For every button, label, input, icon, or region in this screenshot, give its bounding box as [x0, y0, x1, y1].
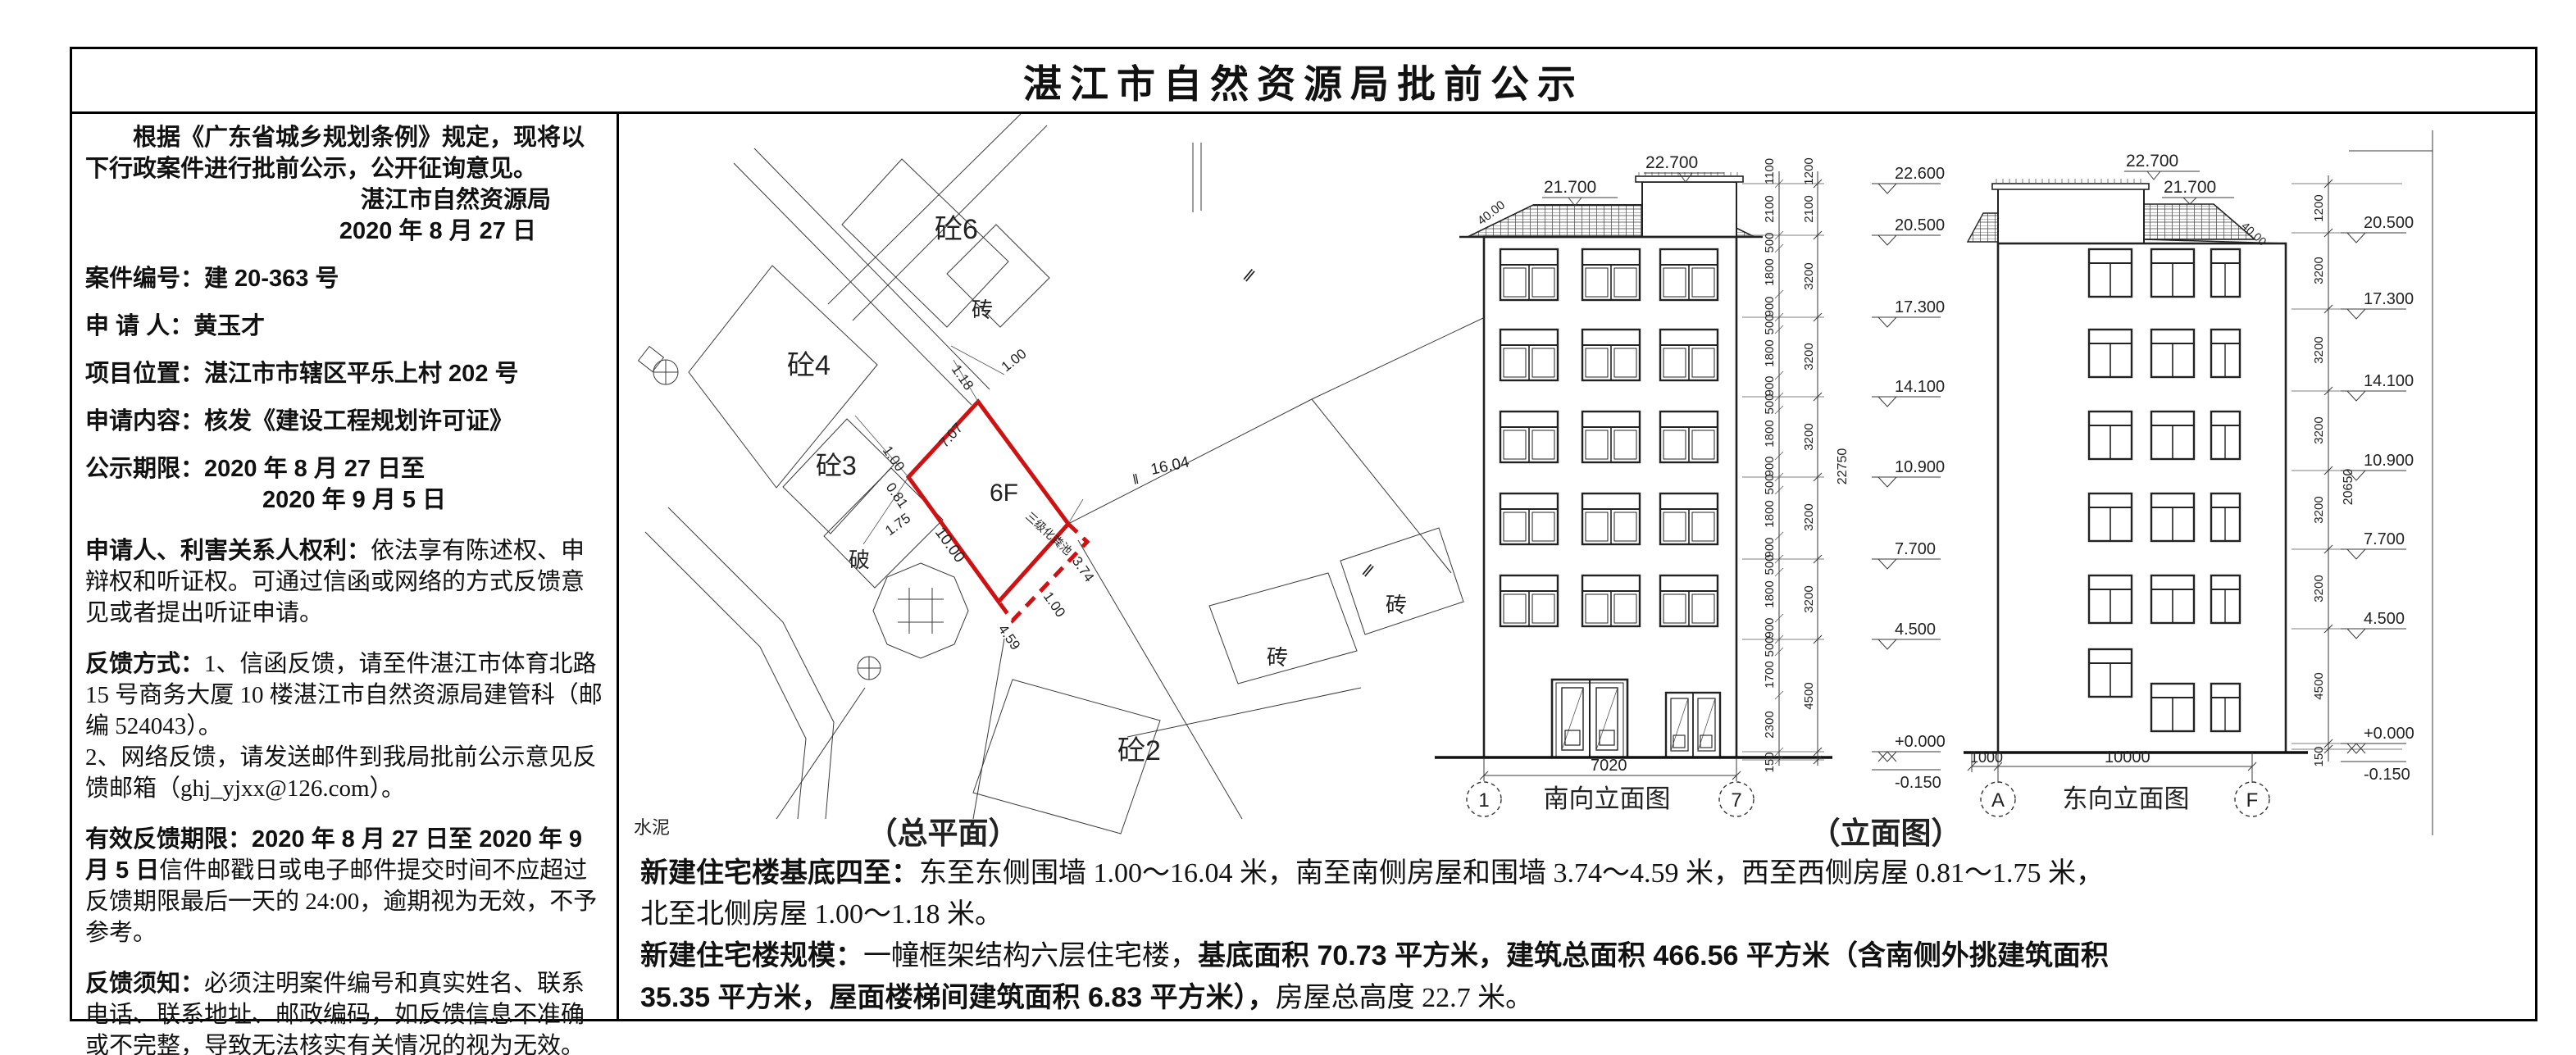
level-value: 7.700 [2364, 530, 2405, 548]
axis-label: 7 [1731, 789, 1741, 812]
storey-dim: 1200 [2312, 194, 2326, 221]
detail-dim: 500 [1763, 393, 1777, 414]
level-value: +0.000 [2364, 725, 2414, 743]
dim: 4.59 [995, 621, 1024, 653]
axis-label: A [1991, 789, 2005, 812]
dim: 10.00 [931, 525, 968, 566]
storey-dim: 3200 [2312, 336, 2326, 363]
total-dim: 22750 [1836, 448, 1850, 485]
detail-dim: 500 [1763, 636, 1777, 657]
document-frame: 湛江市自然资源局批前公示 根据《广东省城乡规划条例》规定，现将以下行政案件进行批… [70, 47, 2537, 1021]
feedback-block: 反馈方式：1、信函反馈，请至件湛江市体育北路 15 号商务大厦 10 楼湛江市自… [85, 648, 605, 804]
storey-dim: 4500 [2312, 672, 2326, 699]
storey-dim: 1200 [1802, 157, 1816, 184]
footer-line-2: 北至北侧房屋 1.00～1.18 米。 [640, 894, 2524, 935]
storey-dim: 150 [2312, 746, 2326, 766]
page-title: 湛江市自然资源局批前公示 [1023, 52, 1584, 109]
storey-dim: 3200 [2312, 257, 2326, 284]
detail-dim: 1800 [1763, 500, 1777, 527]
rights-block: 申请人、利害关系人权利：依法享有陈述权、申辩权和听证权。可通过信函或网络的方式反… [85, 535, 605, 629]
level-value: 20.500 [1895, 216, 1945, 234]
level-label: 21.700 [2164, 178, 2216, 197]
parcel-label: 砼2 [1117, 735, 1161, 766]
detail-dim: 900 [1763, 617, 1777, 638]
storey-dim: 3200 [2312, 496, 2326, 523]
east-elevation: 22.700 21.700 40.00 1000 10000 A F 东向立 [1964, 130, 2433, 835]
storey-dim: 3200 [1802, 585, 1816, 612]
dim: 16.04 [1149, 453, 1191, 479]
level-value: 7.700 [1895, 540, 1936, 558]
dim: 1.18 [949, 362, 977, 393]
level-value: 10.900 [1895, 458, 1945, 476]
field-period-line2: 2020 年 9 月 5 日 [262, 484, 605, 516]
detail-dim: 2100 [1763, 195, 1777, 222]
break-mark: ‖ [1359, 561, 1377, 581]
detail-dim: 150 [1763, 752, 1777, 772]
east-elev-title: 东向立面图 [2063, 784, 2190, 813]
level-value: 4.500 [2364, 610, 2405, 628]
notice-issue-date: 2020 年 8 月 27 日 [85, 216, 605, 247]
south-levels: 22.600 20.500 17.300 14.100 10.900 7.700… [1872, 165, 1946, 792]
level-value: 10.900 [2364, 452, 2414, 470]
storey-dim: 3200 [1802, 503, 1816, 530]
south-elev-title: 南向立面图 [1544, 784, 1671, 813]
site-plan: 砼4 砼6 砼3 砼2 砖 砖 砖 破 水泥 6F 三级化粪池 1.18 [634, 114, 1513, 850]
brick-label: 砖 [1386, 593, 1407, 617]
detail-dim: 1700 [1763, 661, 1777, 688]
brick-label: 砖 [1267, 645, 1288, 670]
notes-block: 反馈须知：必须注明案件编号和真实姓名、联系电话、联系地址、邮政编码，如反馈信息不… [85, 968, 605, 1055]
feedback-label: 反馈方式： [85, 651, 204, 677]
dim-small: 1000 [1970, 749, 2003, 766]
detail-dim: 1800 [1763, 420, 1777, 447]
footer-l1-text: 东至东侧围墙 1.00～16.04 米，南至南侧房屋和围墙 3.74～4.59 … [919, 858, 2104, 889]
storey-dim: 3200 [2312, 416, 2326, 443]
dim: 1.00 [999, 346, 1030, 375]
detail-dim: 500 [1763, 554, 1777, 575]
footer-notes: 新建住宅楼基底四至：东至东侧围墙 1.00～16.04 米，南至南侧房屋和围墙 … [640, 853, 2524, 1019]
footer-line-1: 新建住宅楼基底四至：东至东侧围墙 1.00～16.04 米，南至南侧房屋和围墙 … [640, 853, 2524, 894]
field-applicant: 申 请 人：黄玉才 [85, 311, 605, 342]
detail-dim: 500 [1763, 232, 1777, 252]
width-dim: 7020 [1591, 757, 1627, 775]
footer-line-4: 35.35 平方米，屋面楼梯间建筑面积 6.83 平方米），房屋总高度 22.7… [640, 977, 2524, 1019]
septic-note: 三级化粪池 [1023, 509, 1075, 557]
level-label: 22.700 [2126, 152, 2178, 171]
footer-l3-text: 一幢框架结构六层住宅楼， [863, 941, 1198, 971]
detail-dim: 1800 [1763, 339, 1777, 366]
detail-dim: 900 [1763, 456, 1777, 476]
level-label: 21.700 [1544, 178, 1596, 197]
level-value: 20.500 [2364, 214, 2414, 232]
valid-period-block: 有效反馈期限：2020 年 8 月 27 日至 2020 年 9 月 5 日信件… [85, 824, 605, 948]
axis-label: 1 [1478, 789, 1489, 812]
field-content: 申请内容：核发《建设工程规划许可证》 [85, 406, 605, 437]
storey-dim: 3200 [1802, 423, 1816, 450]
level-value: 4.500 [1895, 621, 1936, 639]
detail-dim: 900 [1763, 296, 1777, 316]
detail-dim: 500 [1763, 474, 1777, 494]
storey-dim: 3200 [2312, 575, 2326, 602]
rights-label: 申请人、利害关系人权利： [85, 538, 371, 564]
notice-page: 湛江市自然资源局批前公示 根据《广东省城乡规划条例》规定，现将以下行政案件进行批… [0, 0, 2576, 1055]
level-value: 22.600 [1895, 165, 1945, 183]
level-value: +0.000 [1895, 733, 1946, 751]
detail-dim: 1800 [1763, 258, 1777, 285]
detail-dim: 1800 [1763, 580, 1777, 607]
dim-main: 10000 [2105, 748, 2150, 766]
dim: 0.81 [883, 480, 912, 511]
valid-text: 信件邮戳日或电子邮件提交时间不应超过反馈期限最后一天的 24:00，逾期视为无效… [85, 857, 597, 946]
parcel-label: 砼3 [816, 451, 857, 480]
cad-drawings: 砼4 砼6 砼3 砼2 砖 砖 砖 破 水泥 6F 三级化粪池 1.18 [619, 114, 2533, 852]
cement-label: 水泥 [634, 817, 670, 838]
notes-label: 反馈须知： [85, 971, 204, 997]
site-plan-caption: （总平面） [867, 816, 1019, 850]
detail-dim: 500 [1763, 314, 1777, 334]
drawings-area: 砼4 砼6 砼3 砼2 砖 砖 砖 破 水泥 6F 三级化粪池 1.18 [619, 114, 2535, 1019]
plot-6f-label: 6F [990, 480, 1018, 507]
dim: 7.07 [936, 420, 966, 450]
level-label: 22.700 [1645, 153, 1698, 172]
dim: 1.00 [880, 443, 908, 474]
level-value: 14.100 [2364, 372, 2414, 390]
level-value: 17.300 [1895, 298, 1945, 316]
notice-intro: 根据《广东省城乡规划条例》规定，现将以下行政案件进行批前公示，公开征询意见。 [85, 122, 605, 184]
notice-issuer: 湛江市自然资源局 [85, 184, 605, 216]
feedback-text2: 2、网络反馈，请发送邮件到我局批前公示意见反馈邮箱（ghj_yjxx@126.c… [85, 744, 597, 802]
storey-dim: 3200 [1802, 262, 1816, 289]
storey-dim: 2100 [1802, 195, 1816, 222]
footer-l4-bold: 35.35 平方米，屋面楼梯间建筑面积 6.83 平方米）， [640, 982, 1276, 1013]
field-location: 项目位置：湛江市市辖区平乐上村 202 号 [85, 358, 605, 389]
level-value: 17.300 [2364, 290, 2414, 308]
footer-l4-text: 房屋总高度 22.7 米。 [1276, 983, 1534, 1013]
broken-label: 破 [849, 548, 870, 572]
level-value: -0.150 [2364, 766, 2410, 784]
title-bar: 湛江市自然资源局批前公示 [72, 49, 2535, 114]
axis-label: F [2246, 789, 2259, 812]
storey-dim: 4500 [1802, 682, 1816, 709]
notice-text-column: 根据《广东省城乡规划条例》规定，现将以下行政案件进行批前公示，公开征询意见。 湛… [72, 114, 619, 1019]
level-value: -0.150 [1895, 774, 1941, 792]
dim: 1.00 [1040, 589, 1069, 620]
brick-label: 砖 [972, 298, 993, 322]
detail-dim: 1100 [1763, 158, 1777, 184]
field-period-line1: 公示期限：2020 年 8 月 27 日至 [85, 453, 605, 484]
footer-line-3: 新建住宅楼规模：一幢框架结构六层住宅楼，基底面积 70.73 平方米，建筑总面积… [640, 935, 2524, 977]
footer-l1-label: 新建住宅楼基底四至： [640, 857, 919, 889]
break-mark: ‖ [1240, 266, 1258, 286]
parcel-label: 砼6 [935, 214, 978, 245]
detail-dim: 2300 [1763, 711, 1777, 738]
total-dim: 20650 [2342, 469, 2355, 506]
footer-l3-bold: 基底面积 70.73 平方米，建筑总面积 466.56 平方米（含南侧外挑建筑面… [1198, 940, 2109, 971]
south-elevation: 22.700 21.700 40.00 7020 1 7 南向立面图 [1435, 153, 1946, 816]
dim: 1.75 [882, 510, 913, 539]
level-value: 14.100 [1895, 378, 1945, 396]
footer-l3-label: 新建住宅楼规模： [640, 940, 863, 971]
storey-dim: 3200 [1802, 343, 1816, 370]
break-mark: ‖ [1131, 471, 1140, 488]
field-case-no: 案件编号：建 20-363 号 [85, 263, 605, 294]
detail-dim: 900 [1763, 375, 1777, 396]
valid-label: 有效反馈期限： [85, 826, 252, 853]
red-parcel [908, 402, 1087, 621]
elevation-caption: （立面图） [1810, 816, 1962, 850]
parcel-label: 砼4 [787, 350, 831, 381]
